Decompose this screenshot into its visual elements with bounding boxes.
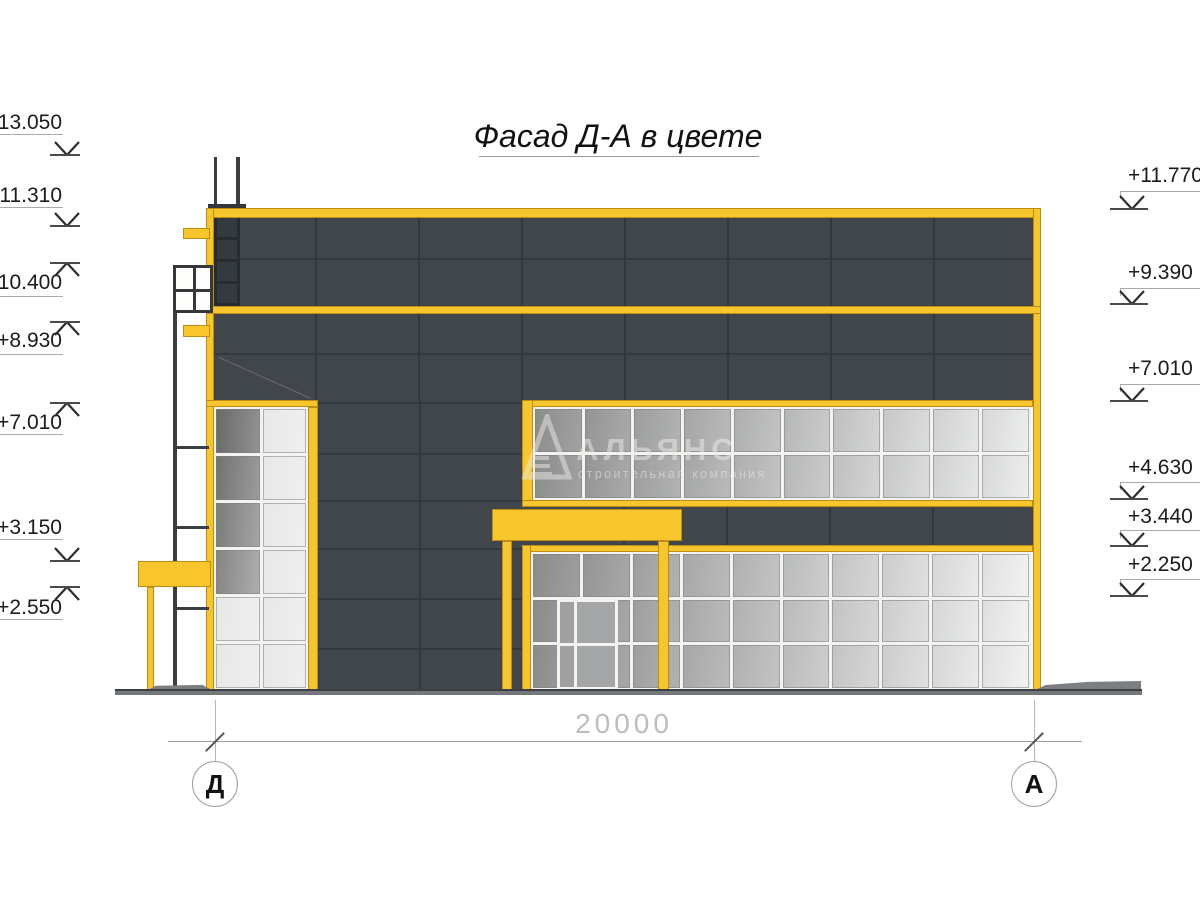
- elevation-tip-line: [1110, 545, 1148, 547]
- window-pane: [784, 455, 831, 498]
- side-canopy-post: [147, 587, 154, 691]
- elevation-shelf-line: [0, 134, 63, 135]
- ladder-support-bar-2: [177, 526, 209, 529]
- window-pane: [683, 554, 730, 597]
- window-pane: [882, 600, 929, 643]
- window-pane: [933, 455, 980, 498]
- elevation-mark-label: +9.390: [1128, 260, 1193, 286]
- window-pane: [783, 645, 830, 688]
- extension-line-d: [215, 700, 216, 763]
- window-pane: [263, 550, 307, 594]
- canopy-post-left: [502, 541, 512, 691]
- canopy-post-right: [658, 541, 669, 691]
- window-pane: [932, 645, 979, 688]
- window-pane: [982, 455, 1029, 498]
- elevation-tip-line: [1110, 498, 1148, 500]
- window-pane: [783, 554, 830, 597]
- ladder-support-bar-3: [177, 607, 209, 610]
- window-pane: [733, 645, 780, 688]
- railing-mid-horizontal: [176, 289, 210, 292]
- window-pane: [832, 645, 879, 688]
- watermark-name: АЛЬЯНС: [576, 432, 739, 468]
- window-pane: [216, 409, 260, 453]
- tower-top-bar: [206, 400, 318, 407]
- window-pane: [734, 409, 781, 452]
- window-pane: [633, 554, 680, 597]
- window-pane: [883, 455, 930, 498]
- window-pane: [263, 409, 307, 453]
- window-pane: [982, 645, 1029, 688]
- ground-line: [115, 689, 1142, 695]
- window-pane: [882, 645, 929, 688]
- window-pane: [216, 597, 260, 641]
- elevation-tip-line: [1110, 400, 1148, 402]
- cladding-lower-column: [318, 400, 522, 692]
- elevation-mark-label: +10.400: [0, 270, 62, 296]
- cladding-upper: [214, 218, 1033, 306]
- elevation-shelf-line: [0, 619, 63, 620]
- middle-band-top-bar: [522, 400, 1033, 407]
- window-pane: [982, 554, 1029, 597]
- window-pane: [263, 597, 307, 641]
- elevation-shelf-line: [0, 296, 63, 297]
- elevation-mark-label: +7.010: [0, 410, 62, 436]
- window-pane: [216, 644, 260, 688]
- axis-label-a: А: [1025, 769, 1044, 800]
- elevation-tip-line: [50, 560, 80, 562]
- elevation-shelf-line: [1120, 384, 1200, 385]
- elevation-shelf-line: [0, 539, 63, 540]
- window-pane: [633, 600, 680, 643]
- window-pane: [832, 554, 879, 597]
- elevation-shelf-line: [0, 207, 63, 208]
- elevation-tip-line: [50, 586, 80, 588]
- ladder-support-bar-1: [177, 446, 209, 449]
- dimension-value: 20000: [524, 708, 724, 740]
- elevation-mark-label: +8.930: [0, 328, 62, 354]
- elevation-arrow-icon: [54, 402, 80, 417]
- facade-drawing: Фасад Д-А в цвете: [0, 0, 1200, 900]
- elevation-mark-label: +3.150: [0, 515, 62, 541]
- elevation-tip-line: [1110, 208, 1148, 210]
- window-pane: [882, 554, 929, 597]
- window-pane: [216, 503, 260, 547]
- elevation-tip-line: [1110, 595, 1148, 597]
- elevation-shelf-line: [1120, 288, 1200, 289]
- window-pane: [263, 644, 307, 688]
- window-pane: [583, 554, 630, 597]
- escape-ladder-pole: [173, 313, 177, 692]
- window-pane: [263, 503, 307, 547]
- window-pane: [683, 600, 730, 643]
- window-pane: [683, 645, 730, 688]
- elevation-mark-label: +3.440: [1128, 504, 1193, 530]
- elevation-mark-label: +11.310: [0, 183, 62, 209]
- elevation-shelf-line: [1120, 482, 1200, 483]
- door-mid-rail: [558, 643, 617, 646]
- window-pane: [216, 550, 260, 594]
- roof-ladder-rail-right: [236, 157, 240, 208]
- window-pane: [932, 600, 979, 643]
- window-pane: [833, 409, 880, 452]
- cladding-middle: [214, 314, 1033, 400]
- window-pane: [982, 409, 1029, 452]
- elevation-tip-line: [50, 225, 80, 227]
- extension-line-a: [1034, 700, 1035, 763]
- dimension-line: [168, 741, 1082, 742]
- elevation-tip-line: [50, 402, 80, 404]
- axis-marker-a: А: [1011, 761, 1057, 807]
- window-pane: [733, 600, 780, 643]
- elevation-mark-label: +4.630: [1128, 455, 1193, 481]
- elevation-arrow-icon: [54, 586, 80, 601]
- elevation-tip-line: [50, 262, 80, 264]
- company-watermark: АЛЬЯНС строительная компания: [522, 412, 702, 484]
- title-underline: [479, 156, 759, 157]
- window-pane: [783, 600, 830, 643]
- roof-ladder-base: [208, 204, 246, 208]
- elevation-shelf-line: [0, 434, 63, 435]
- window-pane: [733, 554, 780, 597]
- elevation-shelf-line: [1120, 579, 1200, 580]
- window-pane: [933, 409, 980, 452]
- entrance-canopy: [492, 509, 682, 541]
- wall-bracket-lower: [183, 325, 210, 337]
- lower-band-top-bar: [522, 545, 1033, 552]
- elevation-mark-label: +2.250: [1128, 552, 1193, 578]
- parapet-band: [206, 208, 1041, 218]
- elevation-mark-label: +2.550: [0, 595, 62, 621]
- window-pane: [832, 600, 879, 643]
- window-pane: [784, 409, 831, 452]
- lower-band-left-strip: [522, 545, 531, 692]
- window-pane: [982, 600, 1029, 643]
- elevation-mark-label: +7.010: [1128, 356, 1193, 382]
- mid-band: [206, 306, 1041, 314]
- tower-window-grid: [214, 407, 308, 690]
- tower-right-strip: [308, 407, 318, 692]
- elevation-tip-line: [50, 154, 80, 156]
- window-pane: [883, 409, 930, 452]
- elevation-tip-line: [50, 321, 80, 323]
- window-pane: [263, 456, 307, 500]
- window-pane: [833, 455, 880, 498]
- elevation-arrow-icon: [54, 262, 80, 277]
- window-pane: [533, 554, 580, 597]
- side-canopy: [138, 561, 211, 587]
- window-pane: [932, 554, 979, 597]
- window-pane: [633, 645, 680, 688]
- elevation-shelf-line: [0, 354, 63, 355]
- elevation-arrow-icon: [54, 321, 80, 336]
- elevation-shelf-line: [1120, 191, 1200, 192]
- window-pane: [216, 456, 260, 500]
- middle-band-bottom-bar: [522, 500, 1033, 507]
- elevation-mark-label: +13.050: [0, 110, 62, 136]
- wall-ladder-cage: [214, 218, 240, 306]
- elevation-shelf-line: [1120, 530, 1200, 531]
- wall-bracket-upper: [183, 228, 210, 239]
- elevation-mark-label: +11.770: [1128, 163, 1200, 189]
- drawing-title: Фасад Д-А в цвете: [318, 118, 918, 155]
- right-edge-strip: [1033, 208, 1041, 692]
- company-logo-icon: [522, 414, 572, 480]
- escape-platform-railing: [173, 265, 213, 313]
- roof-ladder-rail-left: [214, 157, 218, 208]
- watermark-subtitle: строительная компания: [578, 467, 767, 481]
- axis-label-d: Д: [206, 769, 225, 800]
- elevation-tip-line: [1110, 303, 1148, 305]
- axis-marker-d: Д: [192, 761, 238, 807]
